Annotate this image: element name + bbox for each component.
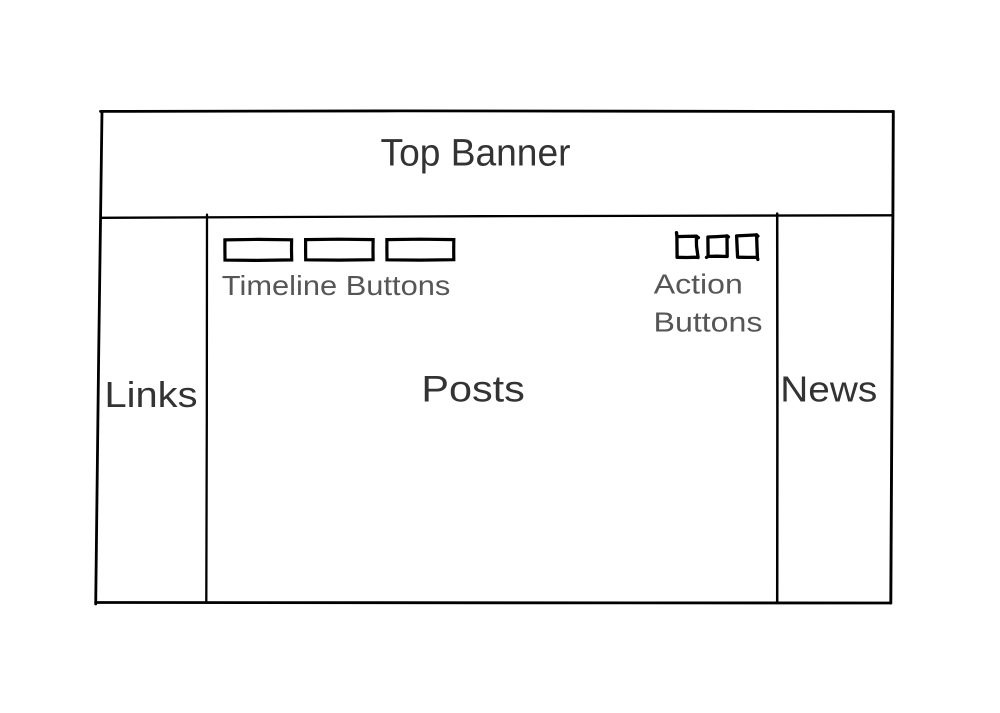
svg-text:Posts: Posts <box>421 368 525 409</box>
svg-text:News: News <box>780 368 877 409</box>
svg-text:Links: Links <box>105 374 198 415</box>
svg-text:Buttons: Buttons <box>654 306 763 337</box>
svg-text:Action: Action <box>654 268 743 299</box>
svg-text:Timeline Buttons: Timeline Buttons <box>222 270 451 301</box>
svg-text:Top Banner: Top Banner <box>381 133 571 175</box>
